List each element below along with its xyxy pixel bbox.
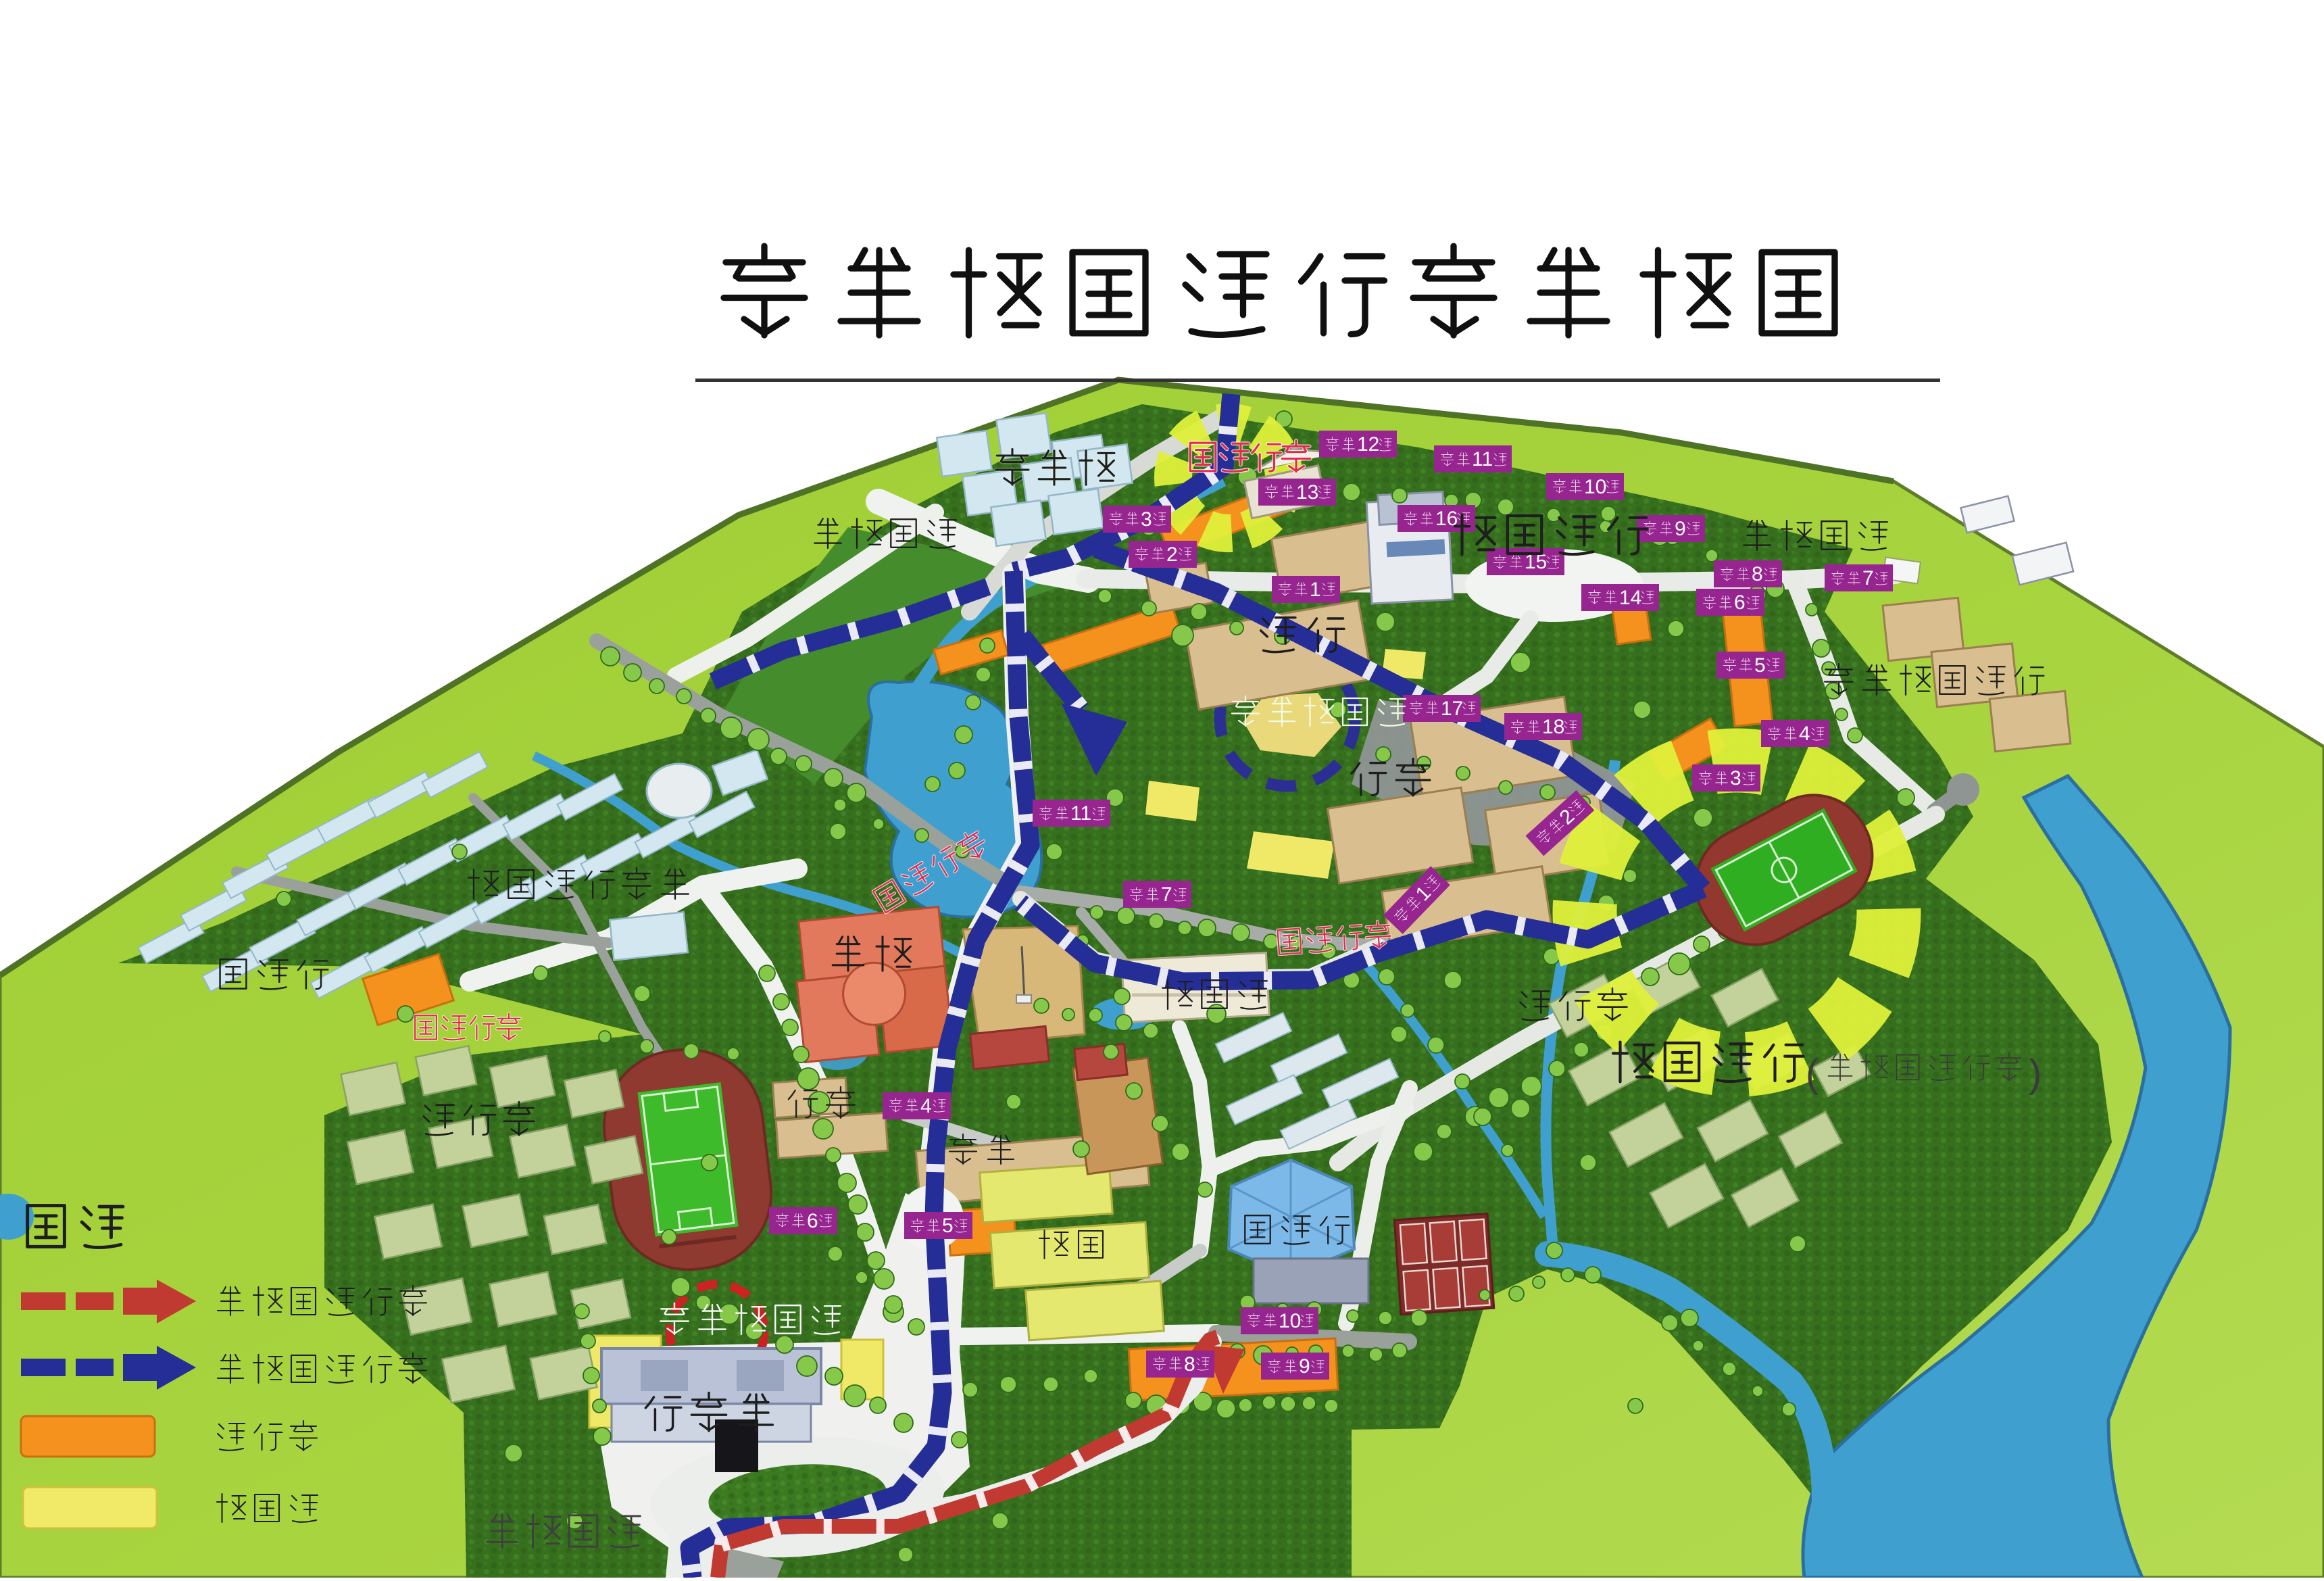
svg-text:5: 5 bbox=[942, 1215, 954, 1237]
svg-text:14: 14 bbox=[1619, 587, 1641, 609]
svg-text:18: 18 bbox=[1542, 716, 1564, 738]
svg-text:2: 2 bbox=[1166, 543, 1178, 566]
svg-text:9: 9 bbox=[1299, 1355, 1310, 1378]
svg-text:3: 3 bbox=[1141, 508, 1152, 531]
svg-text:10: 10 bbox=[1584, 476, 1606, 498]
svg-text:5: 5 bbox=[1754, 654, 1766, 677]
svg-text:11: 11 bbox=[1472, 448, 1493, 470]
svg-text:6: 6 bbox=[807, 1210, 818, 1232]
svg-text:7: 7 bbox=[1161, 883, 1172, 906]
svg-text:12: 12 bbox=[1357, 433, 1379, 456]
svg-text:9: 9 bbox=[1675, 518, 1686, 540]
svg-text:10: 10 bbox=[1279, 1310, 1301, 1332]
svg-text:8: 8 bbox=[1752, 563, 1763, 585]
svg-text:): ) bbox=[2029, 1052, 2042, 1096]
svg-text:1: 1 bbox=[1310, 579, 1321, 601]
svg-text:6: 6 bbox=[1734, 591, 1746, 614]
svg-text:17: 17 bbox=[1441, 698, 1463, 720]
svg-text:8: 8 bbox=[1184, 1353, 1195, 1376]
svg-text:4: 4 bbox=[920, 1095, 932, 1117]
svg-text:(: ( bbox=[1806, 1052, 1819, 1096]
svg-text:13: 13 bbox=[1296, 481, 1318, 504]
svg-text:3: 3 bbox=[1730, 767, 1741, 789]
svg-text:4: 4 bbox=[1799, 723, 1810, 745]
svg-text:7: 7 bbox=[1862, 567, 1874, 589]
svg-text:11: 11 bbox=[1070, 802, 1091, 825]
